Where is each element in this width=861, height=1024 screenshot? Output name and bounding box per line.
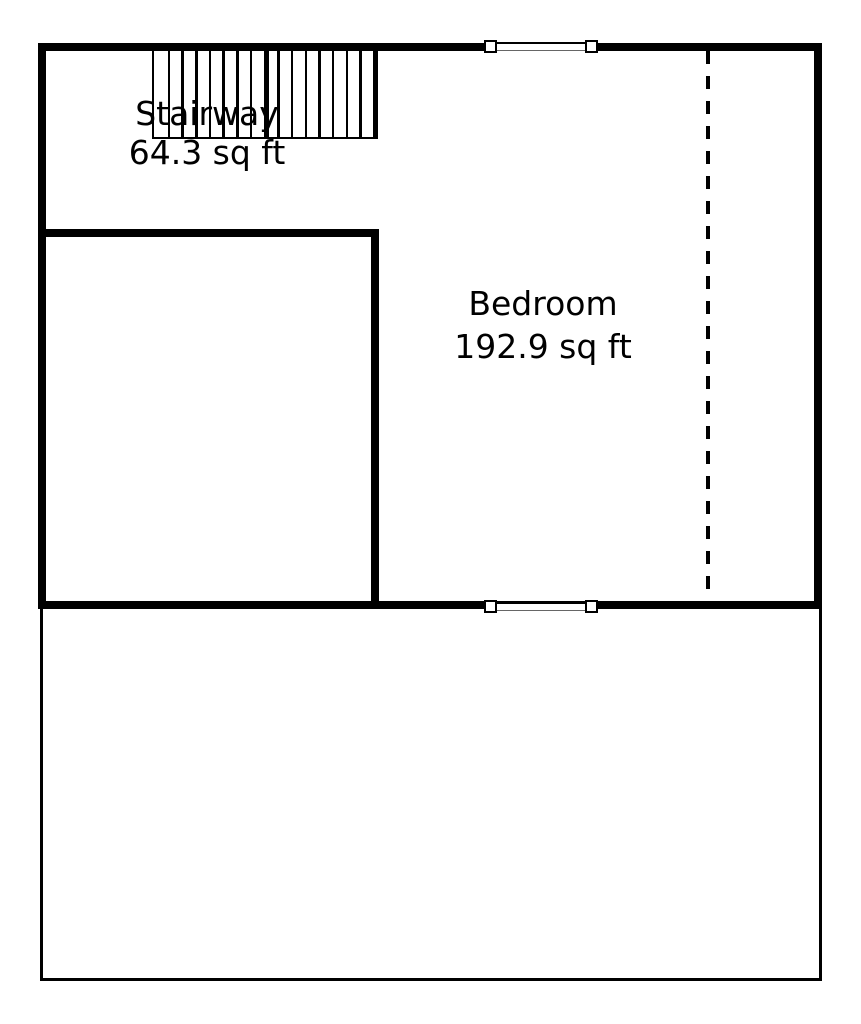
- room-name: Bedroom: [454, 282, 632, 325]
- stair-tread: [346, 51, 349, 137]
- stair-tread: [291, 51, 294, 137]
- stair-tread: [318, 51, 321, 137]
- room-label-stairway: Stairway 64.3 sq ft: [129, 94, 286, 172]
- window-pane: [494, 602, 588, 611]
- lower-level-outline: [40, 601, 822, 981]
- room-area: 192.9 sq ft: [454, 325, 632, 368]
- window-icon: [484, 600, 598, 613]
- room-label-bedroom: Bedroom 192.9 sq ft: [454, 282, 632, 368]
- floorplan-canvas: Stairway 64.3 sq ft Bedroom 192.9 sq ft: [0, 0, 861, 1024]
- stair-tread: [305, 51, 308, 137]
- window-jamb: [484, 40, 497, 53]
- inner-room-walls: [38, 229, 379, 609]
- dashed-projection-line-icon: [706, 51, 710, 602]
- window-jamb: [585, 40, 598, 53]
- window-jamb: [484, 600, 497, 613]
- stair-tread: [359, 51, 362, 137]
- room-area: 64.3 sq ft: [129, 133, 286, 172]
- stair-tread: [332, 51, 335, 137]
- window-icon: [484, 40, 598, 53]
- room-name: Stairway: [129, 94, 286, 133]
- window-pane: [494, 42, 588, 51]
- window-jamb: [585, 600, 598, 613]
